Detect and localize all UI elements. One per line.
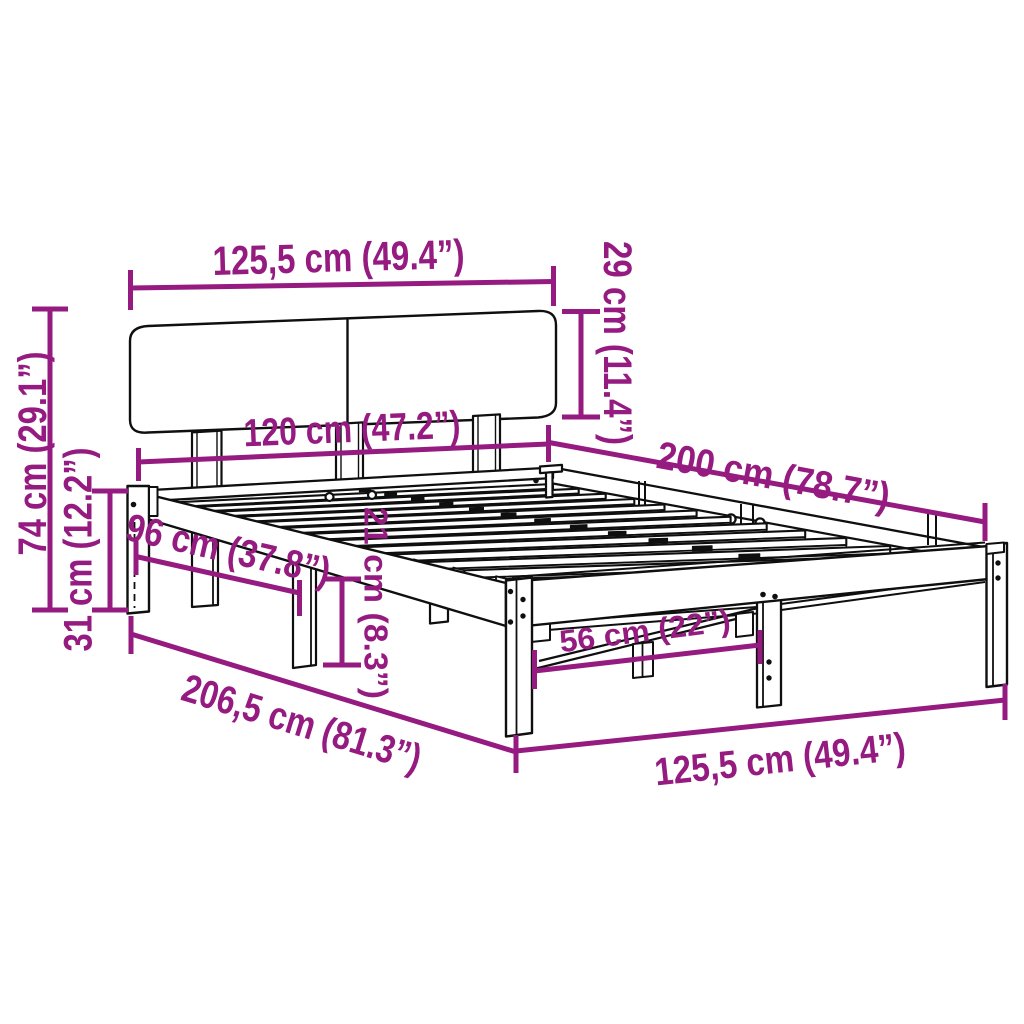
svg-text:31 cm (12.2”): 31 cm (12.2”) [57, 448, 101, 652]
svg-text:74 cm (29.1”): 74 cm (29.1”) [11, 352, 55, 556]
svg-text:125,5 cm (49.4”): 125,5 cm (49.4”) [212, 231, 465, 284]
svg-text:120 cm (47.2”): 120 cm (47.2”) [243, 404, 462, 456]
svg-text:29 cm (11.4”): 29 cm (11.4”) [595, 241, 639, 445]
svg-text:21 cm (8.3”): 21 cm (8.3”) [357, 507, 394, 699]
